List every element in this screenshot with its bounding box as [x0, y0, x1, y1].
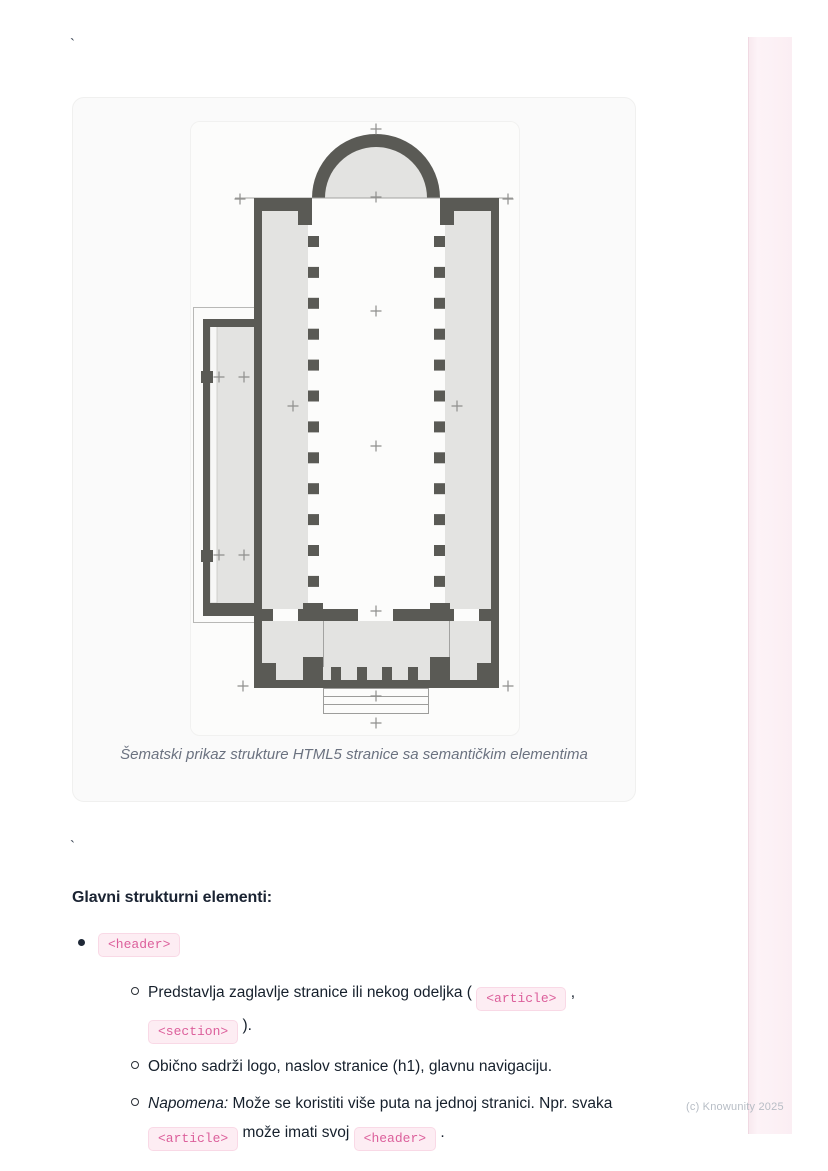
main-list: <header> Predstavlja zaglavlje stranice … [72, 930, 632, 1159]
section-heading: Glavni strukturni elementi: [72, 889, 272, 907]
circle-bullet-marker [131, 1098, 139, 1106]
inline-code-chip: <header> [98, 933, 180, 957]
bullet-marker [78, 939, 85, 946]
list-item-header-tag: <header> Predstavlja zaglavlje stranice … [72, 930, 632, 1151]
stray-backtick-top: ` [70, 36, 75, 53]
page-edge-strip [748, 37, 792, 1134]
list-item: Predstavlja zaglavlje stranice ili nekog… [131, 978, 648, 1044]
circle-bullet-marker [131, 987, 139, 995]
list-item: Napomena: Može se koristiti više puta na… [131, 1089, 648, 1151]
stray-backtick-middle: ` [70, 838, 75, 855]
text-segment: Može se koristiti više puta na jednoj st… [228, 1095, 612, 1112]
inline-code-chip: <header> [354, 1127, 436, 1151]
list-item: Obično sadrži logo, naslov stranice (h1)… [131, 1052, 648, 1081]
text-segment: Obično sadrži logo, naslov stranice (h1)… [148, 1058, 552, 1075]
floor-plan-svg [191, 122, 517, 733]
inline-code-chip: <section> [148, 1020, 238, 1044]
floor-plan-image [190, 121, 520, 736]
text-segment: Predstavlja zaglavlje stranice ili nekog… [148, 984, 476, 1001]
left-annex [194, 308, 263, 623]
inline-code-chip: <article> [476, 987, 566, 1011]
italic-text: Napomena: [148, 1095, 228, 1112]
figure-card: Šematski prikaz strukture HTML5 stranice… [72, 97, 636, 802]
inline-code-chip: <article> [148, 1127, 238, 1151]
text-segment: ). [238, 1017, 252, 1034]
sub-list: Predstavlja zaglavlje stranice ili nekog… [131, 978, 632, 1151]
text-segment: , [566, 984, 575, 1001]
text-segment: . [436, 1124, 445, 1141]
text-segment: može imati svoj [238, 1124, 353, 1141]
narthex [262, 621, 491, 680]
figure-caption: Šematski prikaz strukture HTML5 stranice… [73, 746, 635, 763]
circle-bullet-marker [131, 1061, 139, 1069]
watermark: (c) Knowunity 2025 [686, 1101, 784, 1113]
